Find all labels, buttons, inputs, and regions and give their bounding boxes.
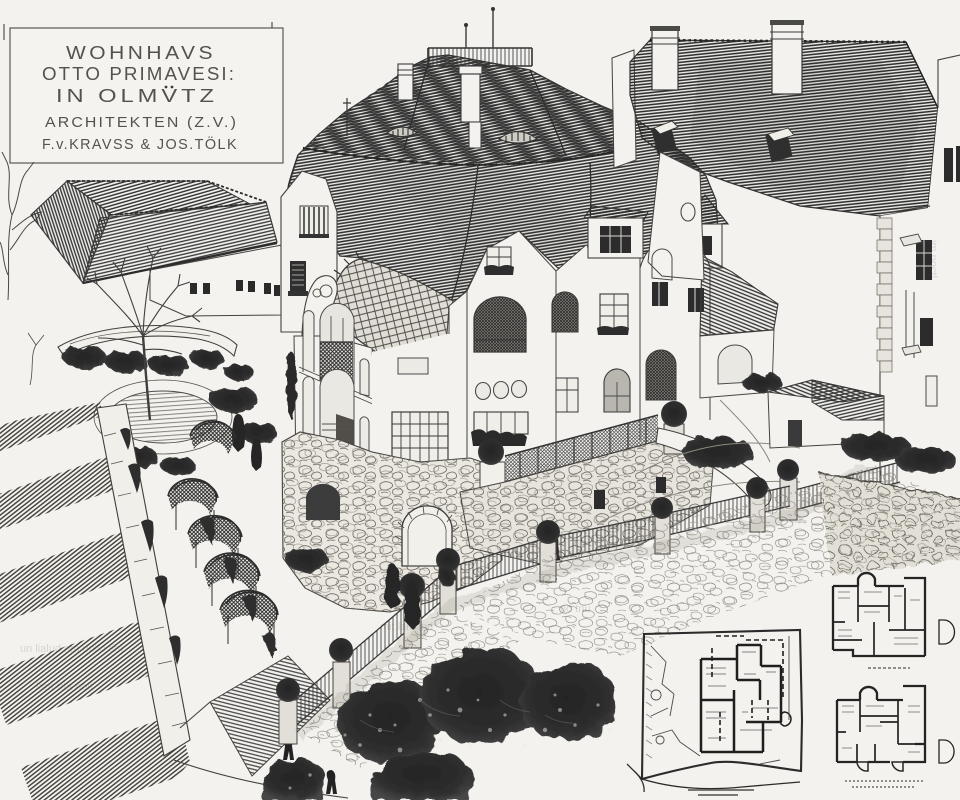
svg-text:un lialud nm unllo tim: un lialud nm unllo tim <box>20 643 123 655</box>
svg-text:ARCHITEKTEN (Z.V.): ARCHITEKTEN (Z.V.) <box>45 114 238 131</box>
svg-text:WOHNHAVS: WOHNHAVS <box>66 43 216 63</box>
svg-text:nt al: nt al <box>540 461 561 473</box>
svg-text:mit lam ind: mit lam ind <box>380 621 433 633</box>
svg-text:lam tda noit: lam tda noit <box>36 681 93 693</box>
svg-text:od tnu: od tnu <box>560 603 591 615</box>
svg-text:im noctl: im noctl <box>927 240 939 278</box>
svg-text:OTTO PRIMAVESI:: OTTO PRIMAVESI: <box>42 64 236 84</box>
svg-text:IN OLMVTZ: IN OLMVTZ <box>56 86 218 106</box>
svg-text:F.v.KRAVSS & JOS.TÖLK: F.v.KRAVSS & JOS.TÖLK <box>42 135 238 153</box>
